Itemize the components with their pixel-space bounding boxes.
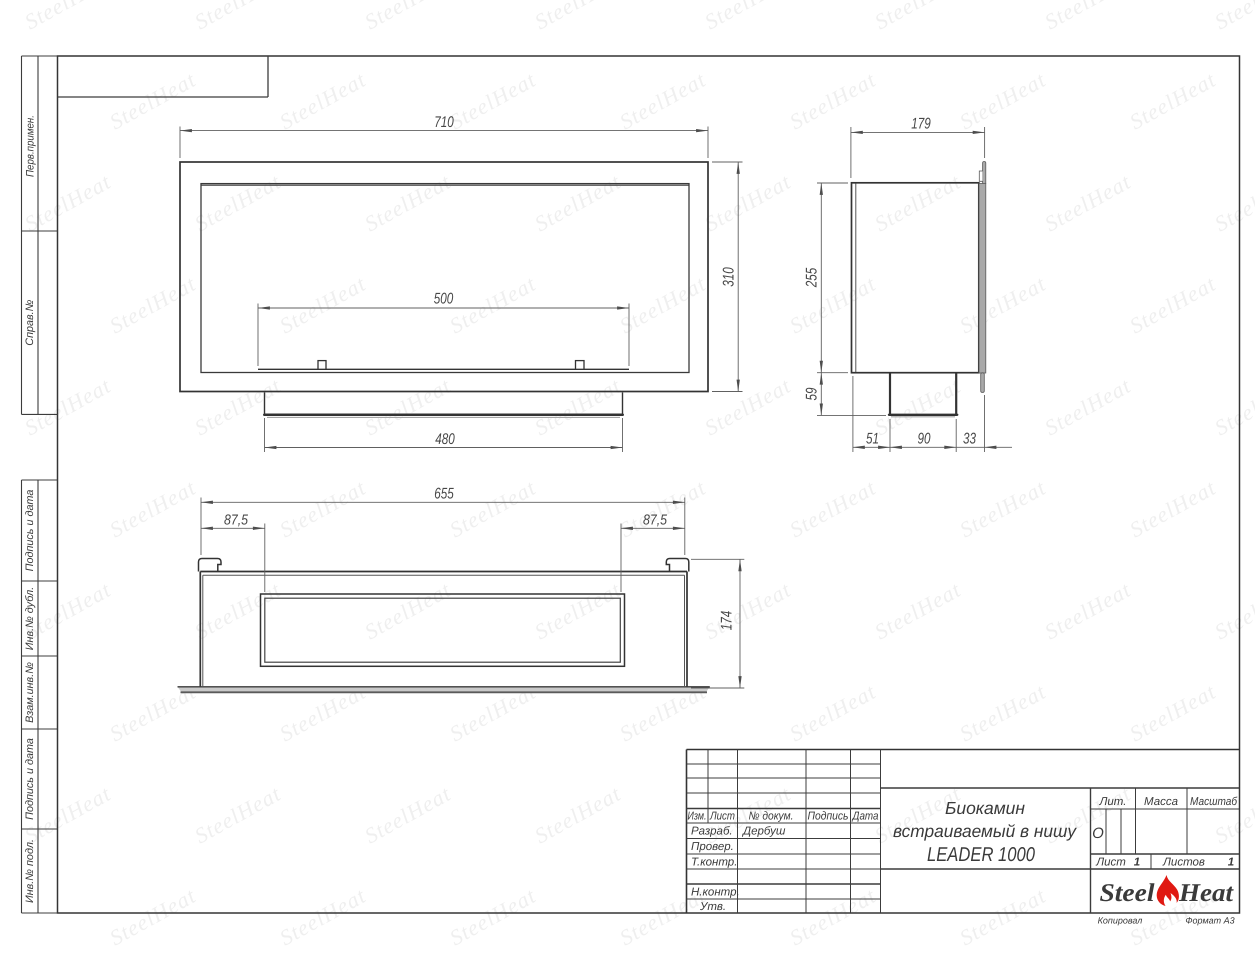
svg-text:SteelHeat: SteelHeat xyxy=(1210,169,1255,237)
svg-text:87,5: 87,5 xyxy=(643,513,668,529)
svg-text:SteelHeat: SteelHeat xyxy=(1040,577,1135,645)
svg-text:1: 1 xyxy=(1228,857,1234,869)
svg-text:SteelHeat: SteelHeat xyxy=(785,271,880,339)
svg-text:Подпись и дата: Подпись и дата xyxy=(24,490,36,572)
svg-text:Перв.примен.: Перв.примен. xyxy=(25,115,37,177)
svg-text:179: 179 xyxy=(911,116,931,133)
svg-text:500: 500 xyxy=(434,291,454,308)
svg-text:Разраб.: Разраб. xyxy=(691,826,733,838)
svg-text:310: 310 xyxy=(721,267,738,287)
svg-text:SteelHeat: SteelHeat xyxy=(105,475,200,543)
svg-text:SteelHeat: SteelHeat xyxy=(1125,271,1220,339)
svg-text:SteelHeat: SteelHeat xyxy=(700,169,795,237)
svg-text:SteelHeat: SteelHeat xyxy=(530,373,625,441)
svg-text:SteelHeat: SteelHeat xyxy=(445,67,540,135)
svg-text:SteelHeat: SteelHeat xyxy=(700,0,795,34)
svg-text:SteelHeat: SteelHeat xyxy=(870,169,965,237)
svg-text:Провер.: Провер. xyxy=(691,841,734,853)
svg-text:SteelHeat: SteelHeat xyxy=(275,271,370,339)
svg-text:SteelHeat: SteelHeat xyxy=(955,883,1050,951)
svg-text:SteelHeat: SteelHeat xyxy=(190,0,285,34)
svg-text:Дата: Дата xyxy=(851,811,879,823)
svg-text:встраиваемый в нишу: встраиваемый в нишу xyxy=(893,821,1077,841)
svg-text:Справ.№: Справ.№ xyxy=(24,299,36,345)
svg-text:SteelHeat: SteelHeat xyxy=(1040,373,1135,441)
svg-text:Формат А3: Формат А3 xyxy=(1185,916,1234,926)
svg-text:SteelHeat: SteelHeat xyxy=(700,373,795,441)
svg-text:1: 1 xyxy=(1134,857,1140,869)
svg-text:LEADER 1000: LEADER 1000 xyxy=(927,844,1035,866)
svg-text:SteelHeat: SteelHeat xyxy=(445,475,540,543)
svg-text:SteelHeat: SteelHeat xyxy=(1210,781,1255,849)
svg-text:Инв.№ подл.: Инв.№ подл. xyxy=(24,839,36,903)
svg-text:SteelHeat: SteelHeat xyxy=(190,577,285,645)
svg-text:255: 255 xyxy=(804,267,821,288)
svg-text:SteelHeat: SteelHeat xyxy=(445,271,540,339)
svg-text:51: 51 xyxy=(866,431,879,448)
svg-text:Подпись: Подпись xyxy=(808,811,849,823)
svg-text:SteelHeat: SteelHeat xyxy=(1210,577,1255,645)
svg-text:59: 59 xyxy=(804,387,821,400)
svg-text:Биокамин: Биокамин xyxy=(945,798,1025,818)
svg-text:SteelHeat: SteelHeat xyxy=(105,883,200,951)
svg-text:SteelHeat: SteelHeat xyxy=(275,883,370,951)
svg-text:Изм.: Изм. xyxy=(688,811,707,823)
svg-text:87,5: 87,5 xyxy=(224,513,249,529)
svg-text:Н.контр.: Н.контр. xyxy=(691,887,740,899)
svg-text:SteelHeat: SteelHeat xyxy=(955,271,1050,339)
svg-text:SteelHeat: SteelHeat xyxy=(530,577,625,645)
svg-text:SteelHeat: SteelHeat xyxy=(1210,0,1255,34)
svg-text:SteelHeat: SteelHeat xyxy=(190,781,285,849)
svg-text:33: 33 xyxy=(963,431,976,448)
svg-text:Листов: Листов xyxy=(1162,857,1205,869)
svg-text:Дербуш: Дербуш xyxy=(741,826,786,838)
svg-text:SteelHeat: SteelHeat xyxy=(530,169,625,237)
svg-text:SteelHeat: SteelHeat xyxy=(1040,0,1135,34)
svg-text:SteelHeat: SteelHeat xyxy=(20,373,115,441)
svg-text:655: 655 xyxy=(434,486,454,503)
svg-text:О: О xyxy=(1092,825,1104,842)
svg-text:Масса: Масса xyxy=(1144,796,1178,808)
svg-text:SteelHeat: SteelHeat xyxy=(955,67,1050,135)
svg-text:SteelHeat: SteelHeat xyxy=(785,475,880,543)
svg-text:Инв.№ дубл.: Инв.№ дубл. xyxy=(24,587,36,650)
svg-text:SteelHeat: SteelHeat xyxy=(615,67,710,135)
svg-text:№ докум.: № докум. xyxy=(749,811,794,823)
svg-text:SteelHeat: SteelHeat xyxy=(360,0,455,34)
svg-text:SteelHeat: SteelHeat xyxy=(20,169,115,237)
svg-text:SteelHeat: SteelHeat xyxy=(530,0,625,34)
svg-text:SteelHeat: SteelHeat xyxy=(1125,475,1220,543)
svg-text:SteelHeat: SteelHeat xyxy=(105,67,200,135)
svg-text:SteelHeat: SteelHeat xyxy=(445,883,540,951)
svg-text:Heat: Heat xyxy=(1178,878,1234,907)
svg-text:Лит.: Лит. xyxy=(1099,796,1127,808)
svg-text:SteelHeat: SteelHeat xyxy=(700,577,795,645)
svg-text:SteelHeat: SteelHeat xyxy=(360,577,455,645)
svg-text:SteelHeat: SteelHeat xyxy=(870,577,965,645)
svg-text:SteelHeat: SteelHeat xyxy=(20,0,115,34)
svg-text:Копировал: Копировал xyxy=(1098,916,1143,926)
svg-text:SteelHeat: SteelHeat xyxy=(190,373,285,441)
svg-text:Лист: Лист xyxy=(1095,857,1126,869)
svg-text:Подпись и дата: Подпись и дата xyxy=(24,738,36,820)
svg-text:SteelHeat: SteelHeat xyxy=(955,475,1050,543)
svg-text:SteelHeat: SteelHeat xyxy=(785,67,880,135)
svg-text:480: 480 xyxy=(435,431,455,448)
svg-text:90: 90 xyxy=(918,431,931,448)
svg-text:Т.контр.: Т.контр. xyxy=(691,857,737,869)
svg-text:SteelHeat: SteelHeat xyxy=(615,271,710,339)
svg-text:Лист: Лист xyxy=(709,811,735,823)
svg-text:SteelHeat: SteelHeat xyxy=(360,781,455,849)
svg-text:SteelHeat: SteelHeat xyxy=(190,169,285,237)
svg-text:Взам.инв.№: Взам.инв.№ xyxy=(24,662,36,723)
svg-text:SteelHeat: SteelHeat xyxy=(1040,169,1135,237)
svg-text:SteelHeat: SteelHeat xyxy=(955,679,1050,747)
svg-text:SteelHeat: SteelHeat xyxy=(105,271,200,339)
svg-text:710: 710 xyxy=(434,114,454,131)
svg-text:Масштаб: Масштаб xyxy=(1190,796,1237,808)
svg-text:Утв.: Утв. xyxy=(699,901,726,913)
svg-text:174: 174 xyxy=(719,610,736,630)
svg-text:SteelHeat: SteelHeat xyxy=(785,679,880,747)
svg-text:SteelHeat: SteelHeat xyxy=(1125,679,1220,747)
svg-text:SteelHeat: SteelHeat xyxy=(785,883,880,951)
svg-text:SteelHeat: SteelHeat xyxy=(275,475,370,543)
svg-text:SteelHeat: SteelHeat xyxy=(1125,67,1220,135)
svg-text:SteelHeat: SteelHeat xyxy=(530,781,625,849)
svg-text:SteelHeat: SteelHeat xyxy=(870,0,965,34)
svg-text:SteelHeat: SteelHeat xyxy=(615,475,710,543)
svg-text:SteelHeat: SteelHeat xyxy=(360,169,455,237)
svg-text:Steel: Steel xyxy=(1100,878,1156,907)
svg-text:SteelHeat: SteelHeat xyxy=(275,67,370,135)
svg-text:SteelHeat: SteelHeat xyxy=(1210,373,1255,441)
